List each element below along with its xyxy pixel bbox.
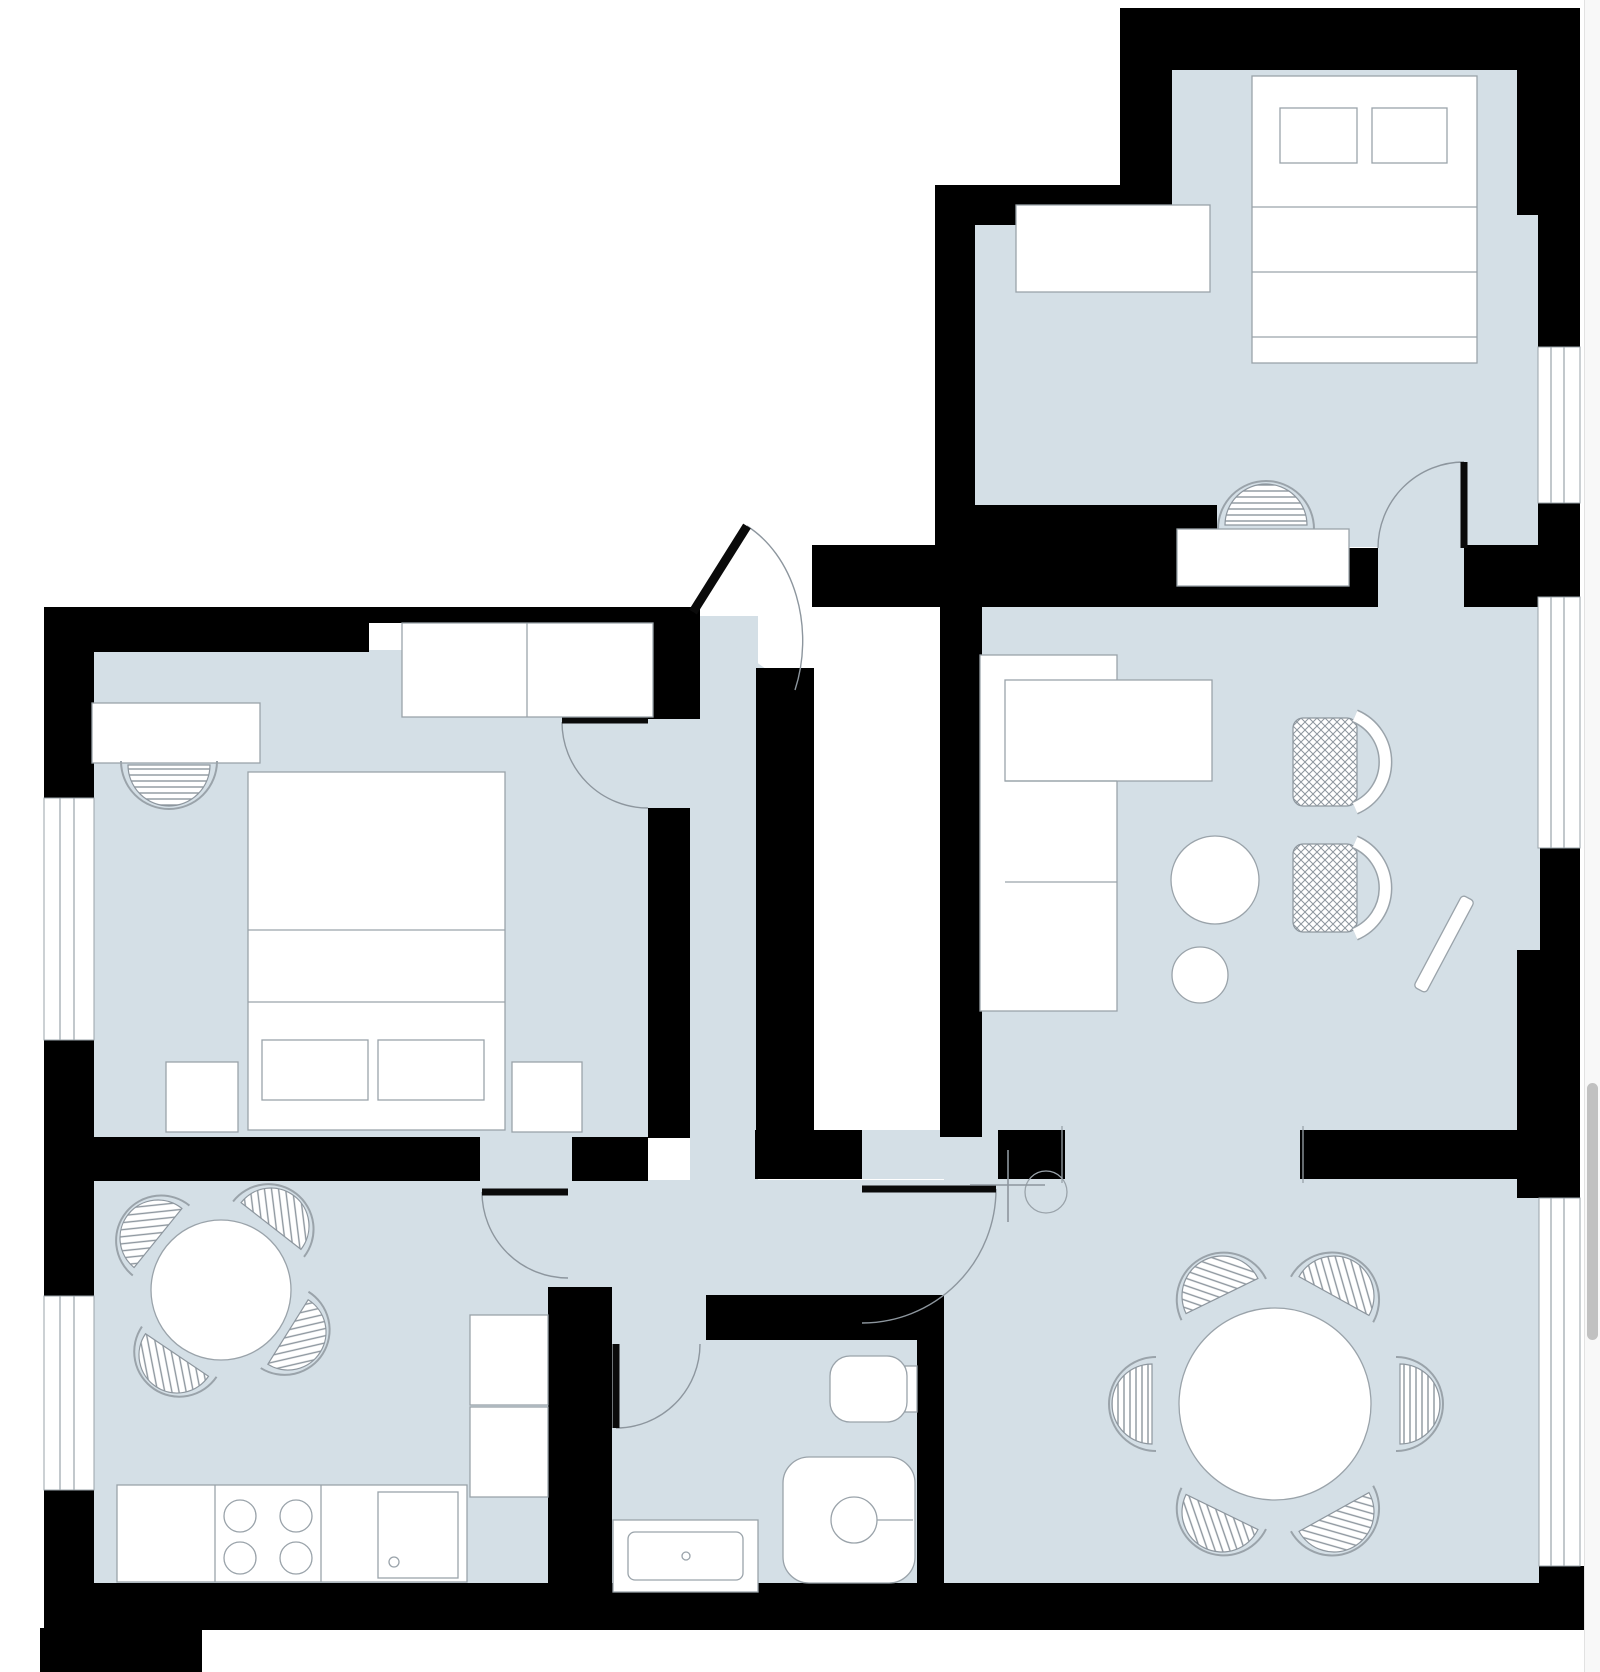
pillow-bedroom2-b	[1372, 108, 1447, 163]
floor-bedroom1-door-gap	[648, 719, 690, 809]
dining-table	[1179, 1308, 1371, 1500]
floor-plan-drawing	[0, 0, 1600, 1672]
coffee-table-large	[1171, 836, 1259, 924]
wall-bedroom1-kitchen-a	[44, 1137, 480, 1181]
pillow-bedroom1-a	[262, 1040, 368, 1100]
wall-bath-right	[917, 1295, 944, 1630]
wardrobe-bedroom2	[1016, 205, 1210, 292]
pillow-bedroom1-b	[378, 1040, 484, 1100]
wall-bottom	[44, 1583, 1580, 1630]
nightstand-right	[512, 1062, 582, 1132]
wall-top	[1120, 8, 1580, 70]
window-dining	[1539, 1198, 1580, 1566]
wall-living-left	[940, 605, 982, 1137]
floor-living-dining-opening	[1065, 1130, 1300, 1179]
coffee-table-small	[1172, 947, 1228, 1003]
leaf-entry-door	[693, 526, 747, 612]
sink-basin	[628, 1532, 743, 1580]
wall-bedroom1-right	[648, 808, 690, 1138]
wall-bottom-left-step	[40, 1628, 202, 1672]
armchair-1-seat	[1293, 718, 1357, 806]
wall-right-top-corner	[1517, 70, 1580, 215]
kitchen-unit-b	[470, 1407, 548, 1497]
wall-kitchen-bath	[548, 1287, 612, 1630]
wall-bedroom2-bottom	[935, 505, 1217, 553]
vertical-scrollbar[interactable]	[1584, 0, 1600, 1672]
floor-bedroom2-door-gap	[1378, 545, 1466, 607]
desk-bedroom2	[1177, 529, 1349, 586]
wall-right-3	[1540, 848, 1580, 952]
wall-bedroom2-left-upper	[1120, 8, 1172, 188]
wall-bedroom1-kitchen-b	[572, 1137, 648, 1181]
wall-bedroom2-left	[935, 185, 975, 545]
floor-plan-page	[0, 0, 1600, 1672]
window-living	[1538, 597, 1580, 848]
window-bedroom1	[44, 798, 94, 1040]
wall-right-1	[1538, 215, 1580, 347]
wall-dining-top-right	[1300, 1130, 1540, 1179]
pillow-bedroom2-a	[1280, 108, 1357, 163]
window-bedroom2	[1538, 347, 1580, 503]
wall-dining-top-left	[755, 1130, 862, 1179]
scrollbar-thumb[interactable]	[1587, 1083, 1598, 1340]
wall-right-2	[1538, 503, 1580, 597]
wall-bedroom1-door-block	[648, 607, 700, 719]
wall-bath-top	[706, 1295, 917, 1340]
wall-entry-right	[756, 668, 814, 1137]
floor-dining-door-gap	[860, 1130, 1000, 1179]
wall-entry-top	[812, 545, 944, 607]
kitchen-table	[151, 1220, 291, 1360]
window-kitchen	[44, 1296, 94, 1490]
floor-kitchen-door-gap	[480, 1137, 572, 1181]
wall-living-top-stub	[1464, 545, 1540, 607]
toilet-bowl	[830, 1356, 907, 1422]
wall-left-upper	[44, 607, 94, 798]
kitchen-unit-a	[470, 1315, 548, 1405]
desk-bedroom1	[92, 703, 260, 763]
nightstand-left	[166, 1062, 238, 1132]
wall-wardrobe-back	[367, 607, 653, 623]
sofa-chaise	[1005, 680, 1212, 781]
armchair-2-seat	[1293, 844, 1357, 932]
